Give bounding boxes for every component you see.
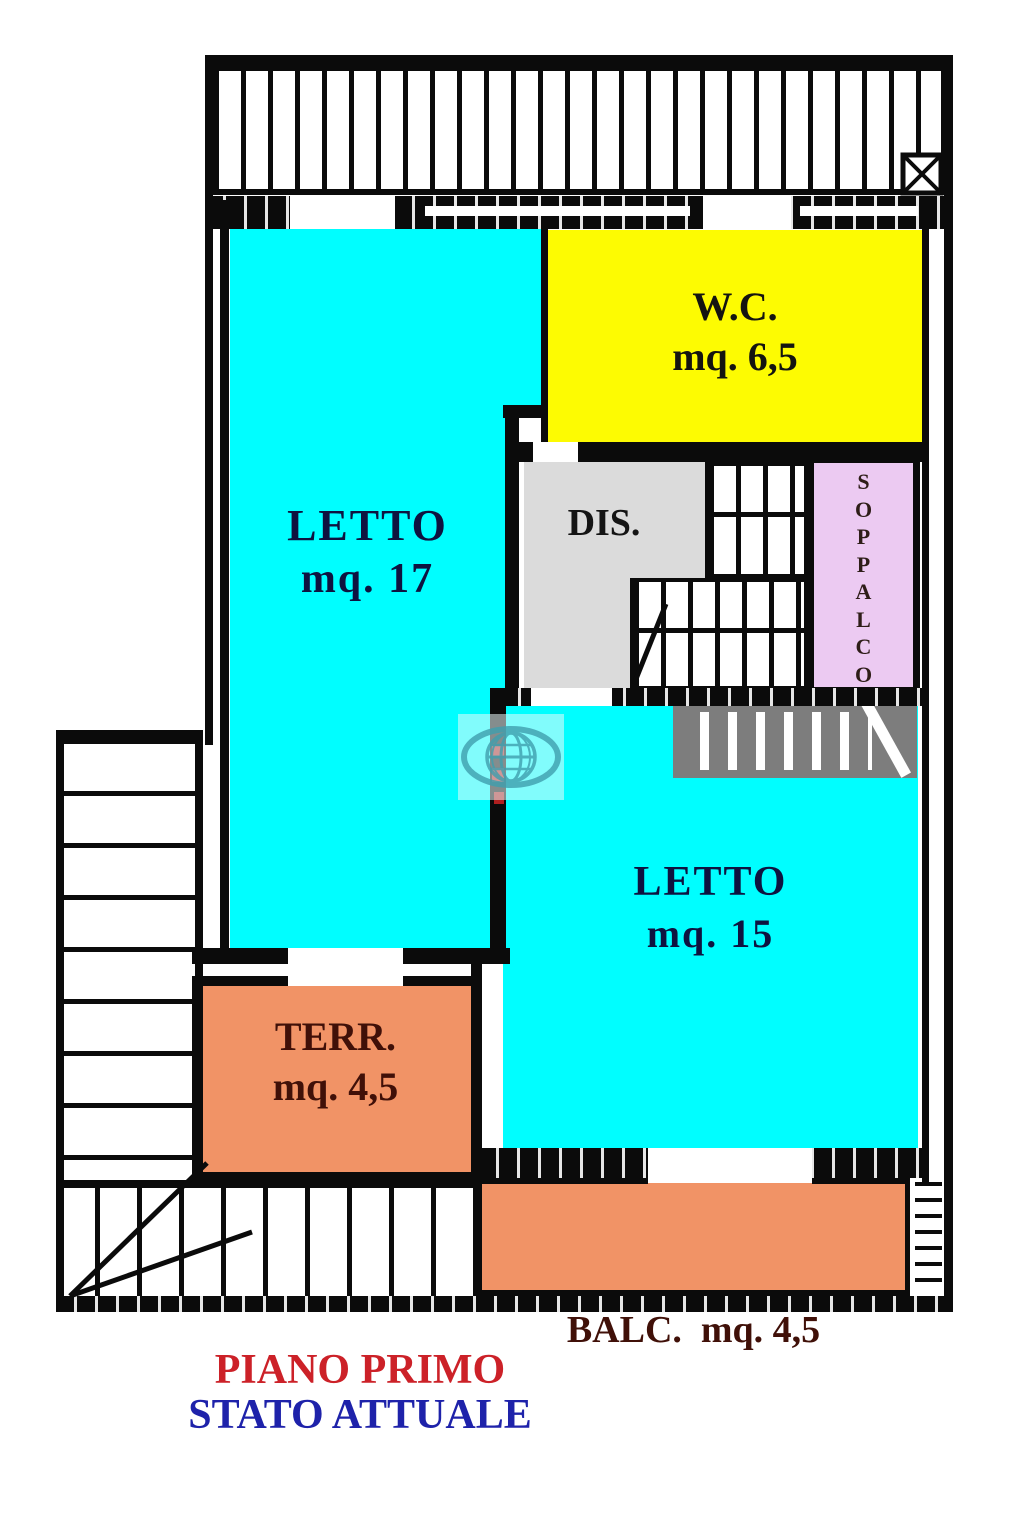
soppalco-letter: P bbox=[857, 523, 870, 551]
soppalco-letter: P bbox=[857, 551, 870, 579]
room-name: LETTO bbox=[503, 856, 918, 909]
window-opening bbox=[703, 196, 791, 229]
room-label-letto17: LETTO mq. 17 bbox=[230, 498, 505, 606]
door-opening-balc bbox=[648, 1148, 812, 1178]
wall-balc-top-right bbox=[812, 1178, 910, 1184]
soppalco-letter: A bbox=[856, 578, 872, 606]
wall-hatch-right bbox=[915, 1182, 942, 1294]
globe-icon bbox=[461, 717, 561, 797]
door-opening-dis-letto15 bbox=[531, 688, 612, 706]
soppalco-letter: O bbox=[855, 661, 872, 689]
plan-caption: PIANO PRIMO STATO ATTUALE bbox=[140, 1348, 580, 1439]
floor-plan: LETTO mq. 17 W.C. mq. 6,5 DIS. S O P P A… bbox=[0, 0, 1024, 1515]
room-label-letto15: LETTO mq. 15 bbox=[503, 856, 918, 959]
caption-line1: PIANO PRIMO bbox=[140, 1348, 580, 1393]
room-area: mq. 15 bbox=[503, 909, 918, 959]
wall-left-inner bbox=[220, 200, 229, 952]
door-opening-terr bbox=[288, 948, 403, 964]
soppalco-letter: S bbox=[857, 468, 869, 496]
external-stair-left bbox=[64, 739, 195, 1182]
caption-line2: STATO ATTUALE bbox=[140, 1393, 580, 1438]
wall-stair-top bbox=[56, 730, 203, 739]
room-name: DIS. bbox=[524, 500, 684, 548]
soppalco-stair-band bbox=[673, 704, 917, 778]
wall-stairband-top bbox=[63, 1180, 478, 1188]
room-label-terr: TERR. mq. 4,5 bbox=[200, 1012, 471, 1112]
room-name: TERR. bbox=[200, 1012, 471, 1062]
room-label-dis: DIS. bbox=[524, 500, 684, 548]
wall-balc-top-left bbox=[477, 1178, 648, 1184]
wall-cavity bbox=[425, 206, 690, 216]
top-hatched-band bbox=[205, 55, 950, 195]
soppalco-letter: L bbox=[856, 606, 871, 634]
room-name: W.C. bbox=[546, 282, 924, 332]
stair-tread-line bbox=[705, 512, 810, 517]
stair-hatch-upper bbox=[705, 462, 810, 578]
room-area: mq. 6,5 bbox=[546, 332, 924, 382]
soppalco-stair-treads bbox=[700, 712, 872, 770]
agency-watermark bbox=[458, 714, 564, 800]
external-stair-bottom bbox=[95, 1188, 478, 1296]
stair-tread-line bbox=[630, 628, 810, 633]
room-label-soppalco: S O P P A L C O bbox=[812, 468, 915, 684]
wall-cavity bbox=[800, 206, 918, 216]
wall-letto17-dis bbox=[505, 405, 519, 695]
wall-right-outer bbox=[944, 55, 953, 1312]
soppalco-letter: C bbox=[856, 633, 872, 661]
room-label-wc: W.C. mq. 6,5 bbox=[546, 282, 924, 382]
window-opening bbox=[290, 196, 395, 229]
stair-hatch-lower bbox=[630, 578, 810, 690]
wall-wc-bottom bbox=[518, 442, 928, 462]
door-opening-wc bbox=[533, 442, 578, 462]
wall-left-outer bbox=[205, 188, 213, 745]
room-letto17-extension bbox=[503, 228, 545, 408]
soppalco-letter: O bbox=[855, 496, 872, 524]
room-area: mq. 4,5 bbox=[200, 1062, 471, 1112]
room-area: mq. 17 bbox=[230, 553, 505, 606]
door-opening-terr bbox=[288, 976, 403, 986]
room-dis-lower bbox=[524, 578, 630, 690]
room-name: LETTO bbox=[230, 498, 505, 553]
wall-stair-inner-right bbox=[195, 730, 203, 1185]
wall-stair-outer-left bbox=[56, 730, 64, 1312]
